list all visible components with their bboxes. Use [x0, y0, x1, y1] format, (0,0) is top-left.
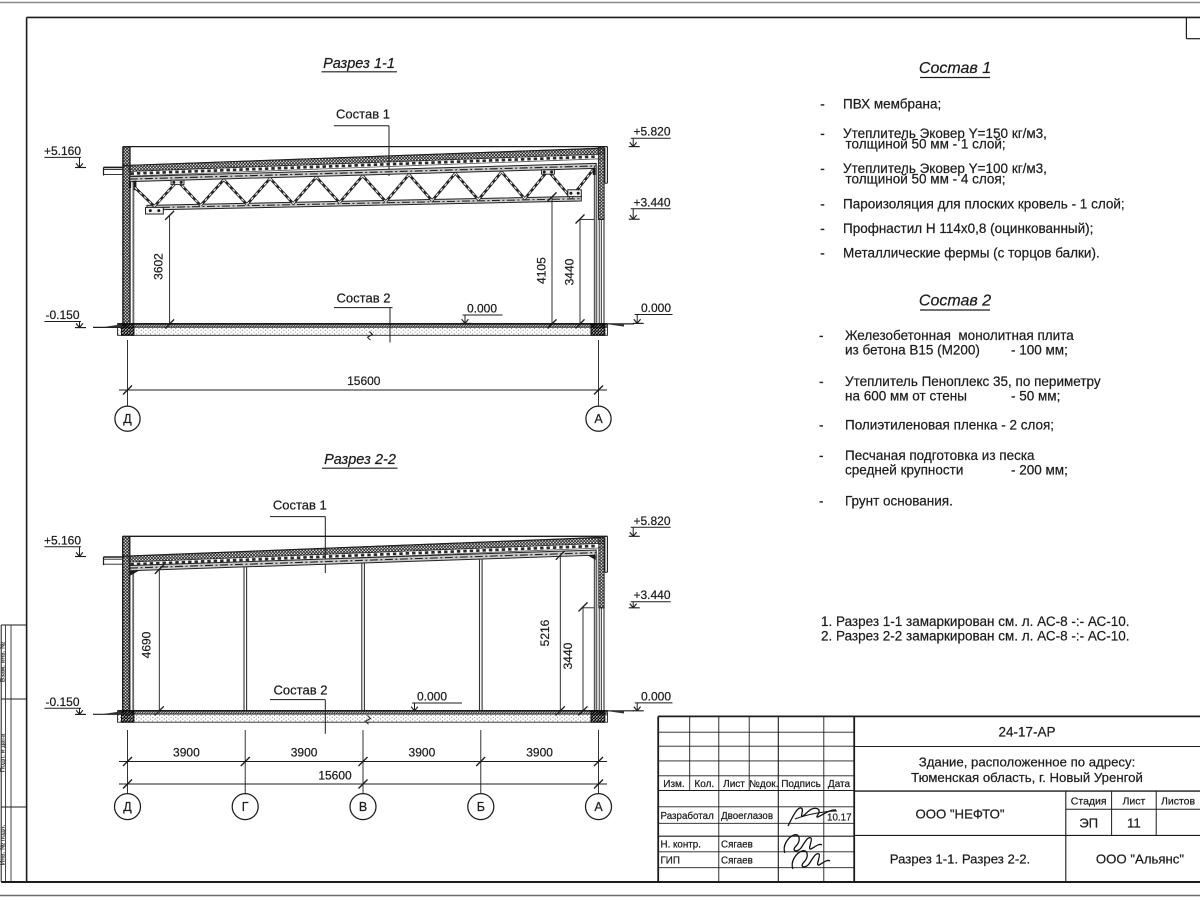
svg-text:- 50 мм;: - 50 мм;	[1011, 388, 1060, 403]
svg-text:Здание, расположенное по адрес: Здание, расположенное по адресу:	[919, 755, 1136, 770]
svg-text:Д: Д	[123, 800, 132, 814]
svg-text:4105: 4105	[534, 257, 548, 284]
svg-text:Металлические фермы (с торцов: Металлические фермы (с торцов балки).	[843, 245, 1100, 260]
svg-text:толщиной 50 мм - 1 слой;: толщиной 50 мм - 1 слой;	[846, 137, 1006, 152]
svg-text:-: -	[820, 96, 825, 111]
svg-text:3900: 3900	[291, 746, 318, 760]
svg-text:0.000: 0.000	[467, 302, 497, 316]
svg-text:Дата: Дата	[828, 779, 851, 790]
svg-text:- 100 мм;: - 100 мм;	[1011, 342, 1068, 357]
svg-text:Состав 2: Состав 2	[919, 293, 991, 310]
svg-text:Разработал: Разработал	[661, 811, 715, 822]
svg-text:А: А	[594, 800, 603, 814]
svg-text:-: -	[819, 494, 824, 509]
svg-text:24-17-АР: 24-17-АР	[998, 725, 1055, 740]
svg-text:Лист: Лист	[1122, 796, 1145, 808]
svg-text:из бетона В15 (М200): из бетона В15 (М200)	[845, 342, 980, 357]
svg-text:Разрез 1-1. Разрез 2-2.: Разрез 1-1. Разрез 2-2.	[890, 852, 1030, 867]
svg-text:А: А	[594, 412, 603, 426]
svg-text:Стадия: Стадия	[1071, 796, 1107, 808]
svg-text:Лист: Лист	[723, 779, 745, 790]
svg-text:Кол.: Кол.	[694, 779, 714, 790]
svg-text:средней крупности: средней крупности	[845, 462, 963, 477]
svg-text:0.000: 0.000	[641, 689, 671, 703]
svg-text:Н. контр.: Н. контр.	[661, 840, 701, 851]
svg-text:ЭП: ЭП	[1079, 816, 1098, 831]
svg-text:ГИП: ГИП	[661, 855, 680, 866]
svg-text:-: -	[820, 196, 825, 211]
svg-text:-0.150: -0.150	[45, 695, 79, 709]
svg-text:№док.: №док.	[749, 779, 778, 790]
svg-text:Состав 2: Состав 2	[274, 682, 328, 697]
svg-text:Утеплитель Пеноплекс 35, по пе: Утеплитель Пеноплекс 35, по периметру	[845, 374, 1101, 389]
svg-text:+3.440: +3.440	[633, 195, 670, 209]
svg-text:Б: Б	[477, 800, 485, 814]
svg-text:Полиэтиленовая пленка - 2 слоя: Полиэтиленовая пленка - 2 слоя;	[845, 418, 1054, 433]
svg-text:Состав 2: Состав 2	[337, 291, 391, 306]
svg-text:Тюменская область, г. Новый Ур: Тюменская область, г. Новый Уренгой	[911, 770, 1143, 785]
svg-text:0.000: 0.000	[641, 301, 671, 315]
svg-text:Изм.: Изм.	[663, 779, 684, 790]
svg-text:10.17: 10.17	[827, 813, 852, 824]
svg-text:Состав 1: Состав 1	[919, 60, 991, 77]
svg-text:-: -	[820, 245, 825, 260]
svg-text:Сягаев: Сягаев	[721, 855, 753, 866]
svg-text:Железобетонная монолитная пли: Железобетонная монолитная плита	[845, 328, 1074, 343]
svg-text:Сягаев: Сягаев	[721, 840, 753, 851]
svg-text:-0.150: -0.150	[45, 308, 79, 322]
svg-text:3440: 3440	[561, 642, 575, 669]
svg-text:Состав 1: Состав 1	[273, 498, 327, 513]
svg-text:3602: 3602	[152, 253, 166, 280]
svg-text:Д: Д	[123, 412, 132, 426]
svg-text:0.000: 0.000	[417, 690, 447, 704]
svg-text:-: -	[819, 448, 824, 463]
svg-text:Песчаная подготовка из песка: Песчаная подготовка из песка	[845, 448, 1035, 463]
svg-text:3900: 3900	[173, 746, 200, 760]
svg-text:Пароизоляция для плоских крове: Пароизоляция для плоских кровель - 1 сло…	[843, 196, 1125, 211]
svg-text:Подп. и дата: Подп. и дата	[0, 733, 7, 772]
svg-text:-: -	[820, 161, 825, 176]
svg-text:-: -	[819, 418, 824, 433]
svg-text:2. Разрез 2-2 замаркирован см.: 2. Разрез 2-2 замаркирован см. л. АС-8 -…	[821, 629, 1130, 644]
svg-text:3900: 3900	[409, 746, 436, 760]
svg-text:+5.820: +5.820	[633, 514, 670, 528]
svg-text:Состав 1: Состав 1	[336, 107, 390, 122]
svg-text:3440: 3440	[562, 258, 576, 285]
svg-text:11: 11	[1127, 816, 1141, 831]
svg-text:15600: 15600	[318, 768, 352, 782]
svg-text:Подпись: Подпись	[781, 779, 821, 790]
svg-text:4690: 4690	[140, 631, 154, 658]
svg-text:ООО "НЕФТО": ООО "НЕФТО"	[915, 807, 1004, 822]
svg-text:15600: 15600	[347, 374, 381, 388]
svg-text:Инв. № подл.: Инв. № подл.	[0, 825, 7, 866]
svg-text:1. Разрез 1-1 замаркирован см.: 1. Разрез 1-1 замаркирован см. л. АС-8 -…	[821, 614, 1130, 629]
svg-text:В: В	[359, 800, 367, 814]
svg-text:Двоеглазов: Двоеглазов	[721, 811, 773, 822]
svg-text:ПВХ мембрана;: ПВХ мембрана;	[843, 96, 941, 111]
svg-text:-: -	[820, 126, 825, 141]
svg-text:-: -	[819, 374, 824, 389]
svg-text:+5.160: +5.160	[44, 144, 81, 158]
svg-text:-: -	[819, 328, 824, 343]
svg-text:3900: 3900	[526, 746, 553, 760]
svg-text:Г: Г	[242, 800, 249, 814]
svg-text:на 600 мм от стены: на 600 мм от стены	[845, 388, 967, 403]
svg-text:Листов: Листов	[1161, 796, 1196, 808]
svg-text:Разрез 1-1: Разрез 1-1	[323, 56, 395, 72]
svg-text:Грунт основания.: Грунт основания.	[845, 494, 953, 509]
svg-text:Разрез 2-2: Разрез 2-2	[324, 452, 396, 468]
svg-text:ООО "Альянс": ООО "Альянс"	[1096, 852, 1184, 867]
svg-text:+5.820: +5.820	[633, 125, 670, 139]
svg-text:-: -	[820, 221, 825, 236]
svg-text:+5.160: +5.160	[44, 533, 81, 547]
svg-text:Профнастил Н 114х0,8 (оцинкова: Профнастил Н 114х0,8 (оцинкованный);	[843, 221, 1093, 236]
svg-text:+3.440: +3.440	[633, 588, 670, 602]
svg-text:- 200 мм;: - 200 мм;	[1011, 462, 1068, 477]
svg-text:Взам. инв. №: Взам. инв. №	[0, 642, 7, 682]
svg-text:толщиной 50 мм - 4 слоя;: толщиной 50 мм - 4 слоя;	[846, 172, 1006, 187]
svg-text:5216: 5216	[538, 619, 552, 646]
